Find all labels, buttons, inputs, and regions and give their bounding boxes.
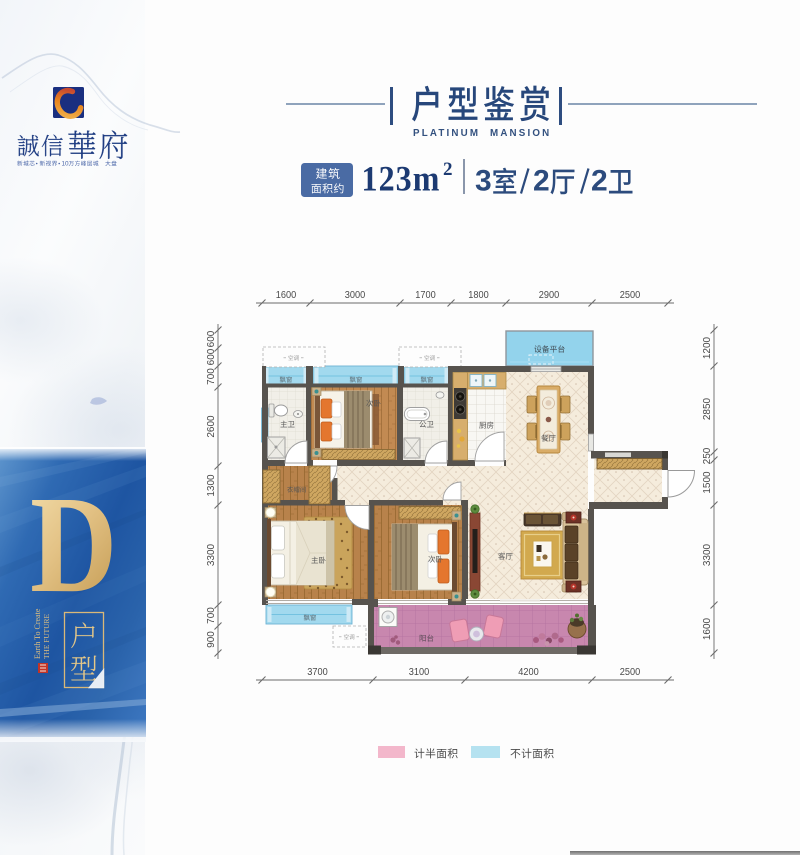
svg-text:4200: 4200 [518,667,538,678]
svg-text:2500: 2500 [620,667,640,678]
svg-text:10: 10 [62,161,70,168]
svg-text:1600: 1600 [702,617,713,640]
svg-text:3: 3 [475,165,492,198]
svg-text:1200: 1200 [702,336,713,359]
svg-text:3100: 3100 [409,667,429,678]
svg-text:3300: 3300 [206,543,217,566]
svg-text:1600: 1600 [276,290,296,301]
svg-text:3300: 3300 [702,543,713,566]
svg-text:600: 600 [206,330,217,347]
svg-text:900: 900 [206,631,217,648]
svg-text:123m: 123m [362,160,441,199]
svg-text:2: 2 [533,165,550,198]
svg-text:250: 250 [702,447,713,464]
svg-text:3000: 3000 [345,290,365,301]
svg-text:2900: 2900 [539,290,559,301]
svg-text:D: D [30,468,117,622]
svg-text:1800: 1800 [468,290,488,301]
svg-text:2: 2 [443,159,453,180]
svg-text:1500: 1500 [702,471,713,494]
svg-text:600: 600 [206,348,217,365]
svg-text:1300: 1300 [206,474,217,497]
svg-text:2600: 2600 [206,415,217,438]
svg-text:2850: 2850 [702,397,713,420]
svg-text:1700: 1700 [415,290,435,301]
svg-text:2500: 2500 [620,290,640,301]
svg-text:700: 700 [206,368,217,385]
svg-text:700: 700 [206,607,217,624]
svg-text:2: 2 [591,165,608,198]
svg-text:3700: 3700 [307,667,327,678]
